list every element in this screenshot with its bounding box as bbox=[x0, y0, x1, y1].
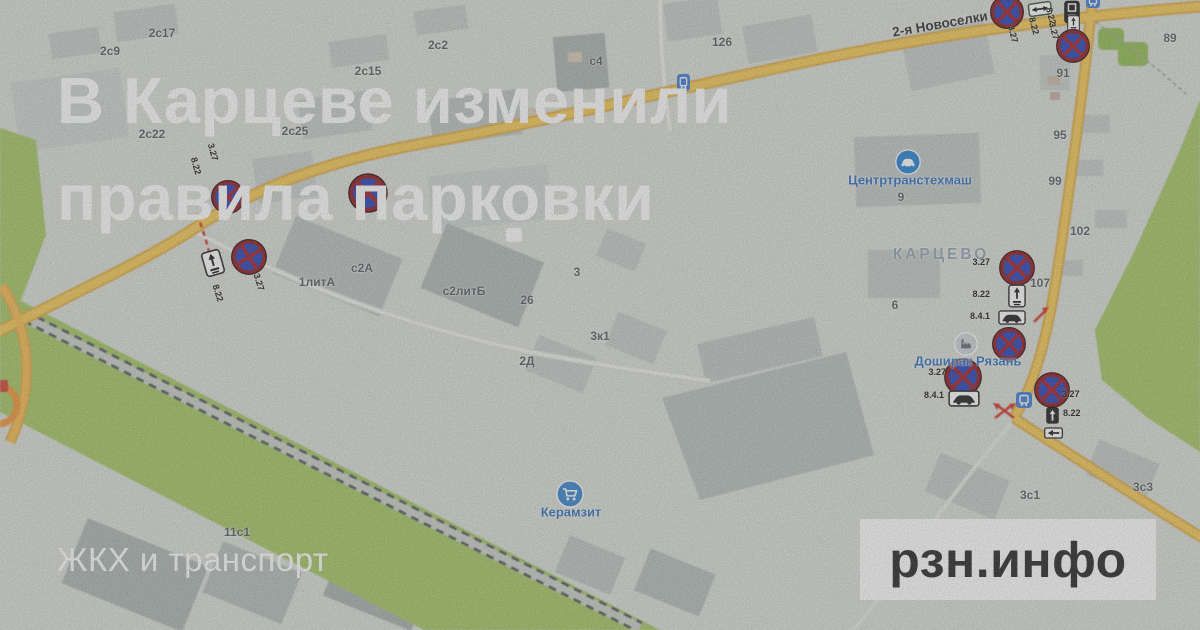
car-service-icon bbox=[895, 149, 921, 175]
poi-label: Доширак Рязань bbox=[915, 354, 1022, 369]
building-label: 1литА bbox=[299, 275, 335, 289]
no-stopping-sign-icon bbox=[1055, 28, 1091, 64]
building-label: 2с9 bbox=[100, 44, 120, 58]
sign-code-label: 8.4.1 bbox=[970, 311, 990, 321]
building-label: 95 bbox=[1053, 128, 1066, 142]
district-label: КАРЦЕВО bbox=[893, 246, 990, 264]
building-label: 3к1 bbox=[590, 329, 609, 343]
building-label: 9 bbox=[898, 190, 905, 204]
building-label: 99 bbox=[1048, 174, 1061, 188]
building-label: 3 bbox=[574, 265, 581, 279]
building-label: с2литБ bbox=[443, 284, 486, 298]
building-label: с2А bbox=[351, 261, 373, 275]
brand-logo-text: рзн.инфо bbox=[889, 531, 1126, 589]
route-marker-icon bbox=[1016, 392, 1032, 408]
title-line-1: В Карцеве изменили bbox=[57, 68, 732, 133]
sign-plate-8-22-icon bbox=[1008, 284, 1026, 308]
sign-code-label: 3.27 bbox=[1062, 389, 1080, 399]
category-label: ЖКХ и транспорт bbox=[57, 541, 328, 579]
poi-label: Центртранстехмаш bbox=[848, 173, 972, 188]
building-label: 91 bbox=[1056, 66, 1069, 80]
building-label: 107 bbox=[1030, 276, 1050, 290]
building-label: 6 bbox=[892, 298, 899, 312]
no-stopping-sign-icon bbox=[226, 234, 271, 279]
sign-code-label: 8.22 bbox=[1063, 408, 1081, 418]
poi-label: Керамзит bbox=[541, 505, 602, 520]
building-label: 89 bbox=[1163, 31, 1176, 45]
building-label: 102 bbox=[1070, 224, 1090, 238]
title-line-2: правила парковки bbox=[57, 165, 654, 230]
sign-plate-left-arrow-icon bbox=[1044, 427, 1063, 439]
building-label: 26 bbox=[520, 293, 533, 307]
building-label: 2с17 bbox=[149, 26, 176, 40]
factory-icon bbox=[954, 332, 978, 356]
building-label: 2с2 bbox=[428, 38, 448, 52]
bus-stop-icon bbox=[1085, 0, 1101, 8]
brand-logo: рзн.инфо bbox=[860, 519, 1156, 600]
building-label: 3с3 bbox=[1133, 480, 1153, 494]
building-label: 2Д bbox=[519, 354, 534, 368]
building-label: 11с1 bbox=[224, 525, 250, 539]
building-label: 3с1 bbox=[1020, 488, 1040, 502]
sign-code-label: 8.22 bbox=[972, 289, 990, 299]
sign-code-label: 8.4.1 bbox=[924, 390, 944, 400]
building-label: 126 bbox=[712, 35, 732, 49]
sign-plate-black-arrow-icon bbox=[1046, 407, 1059, 424]
news-preview-card: 3.27 8.22 3.27 8.22 3.27 8.22 8.22 3.27 … bbox=[0, 0, 1200, 630]
sign-plate-car-icon bbox=[948, 390, 980, 407]
sign-plate-car-icon bbox=[998, 310, 1026, 325]
